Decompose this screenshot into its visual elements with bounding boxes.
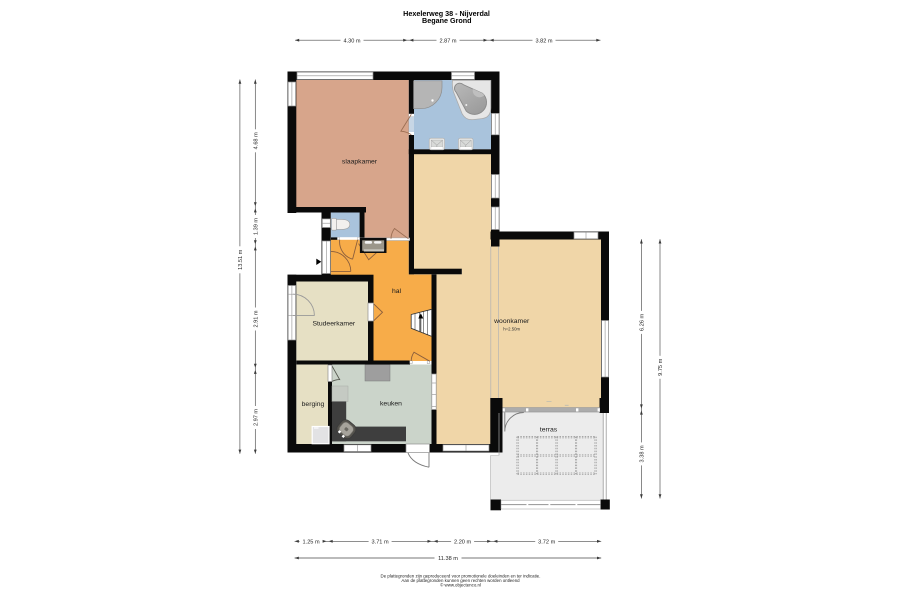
svg-text:9.75 m: 9.75 m [658,358,664,375]
svg-text:2.20 m: 2.20 m [454,539,471,545]
svg-text:4.30 m: 4.30 m [343,38,360,44]
svg-text:terras: terras [540,427,558,434]
svg-text:1.25 m: 1.25 m [303,539,320,545]
svg-text:hal: hal [392,288,402,295]
svg-text:slaapkamer: slaapkamer [342,158,378,165]
svg-text:© www.objectenco.nl: © www.objectenco.nl [440,583,481,588]
svg-text:Studeerkamer: Studeerkamer [312,321,355,328]
svg-text:3.82 m: 3.82 m [535,38,552,44]
svg-text:3.72 m: 3.72 m [538,539,555,545]
svg-text:3.71 m: 3.71 m [372,539,389,545]
svg-text:h=2.50m: h=2.50m [503,327,520,332]
svg-text:woonkamer: woonkamer [493,318,530,325]
svg-text:Begane Grond: Begane Grond [422,16,472,25]
svg-text:11.38 m: 11.38 m [438,556,458,562]
svg-text:2.87 m: 2.87 m [439,38,456,44]
svg-text:6.26 m: 6.26 m [640,314,646,331]
svg-text:2.97 m: 2.97 m [253,409,259,426]
svg-text:keuken: keuken [380,400,402,407]
svg-text:13.51 m: 13.51 m [238,249,244,270]
svg-text:1.39 m: 1.39 m [253,218,259,235]
svg-text:3.38 m: 3.38 m [640,445,646,462]
svg-text:berging: berging [302,401,325,408]
svg-text:2.91 m: 2.91 m [253,310,259,327]
svg-text:4.68 m: 4.68 m [253,132,259,149]
